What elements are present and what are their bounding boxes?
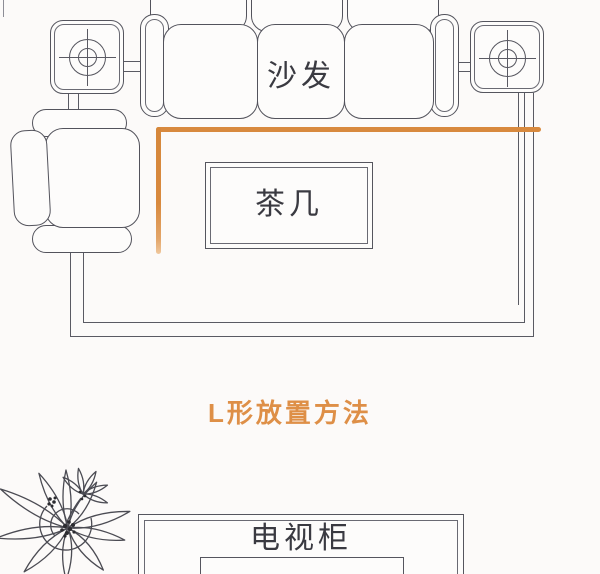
layout-title: L形放置方法	[150, 393, 430, 430]
armchair-armrest-bottom	[32, 225, 132, 253]
tv-screen	[200, 557, 404, 574]
sofa-seat-cushion	[163, 24, 258, 119]
wall-edge-line	[3, 0, 4, 17]
floor-plan-diagram: 沙发 茶几 L形放置方法	[0, 0, 600, 574]
coffee-table-label: 茶几	[210, 188, 368, 222]
armchair-back-cushion	[10, 129, 52, 227]
armchair-seat-cushion	[45, 128, 140, 228]
plant-icon	[0, 456, 145, 574]
sofa-seat-cushion	[344, 24, 434, 119]
tv-cabinet-label: 电视柜	[144, 522, 458, 556]
sofa-label: 沙发	[257, 60, 345, 94]
